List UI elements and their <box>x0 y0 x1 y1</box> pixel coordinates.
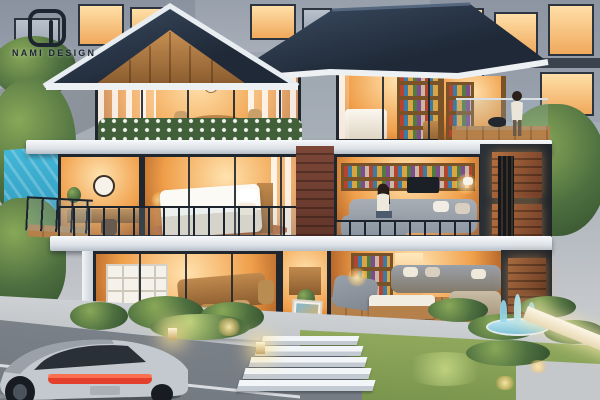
brand-logo: NAMI DESIGN <box>12 8 122 66</box>
floor2-balcony-slab <box>50 236 552 251</box>
sofa-pillow <box>471 269 486 279</box>
garden-step <box>249 357 368 367</box>
bollard-light <box>256 342 265 354</box>
sofa-pillow <box>403 267 418 277</box>
garden-step <box>242 368 371 379</box>
coffee-table <box>369 295 435 319</box>
sofa-pillow <box>433 201 449 212</box>
sofa-pillow <box>455 203 470 214</box>
wall-clock <box>93 175 115 197</box>
brand-name: NAMI DESIGN <box>12 48 122 58</box>
garden-step <box>255 346 364 356</box>
floor3-balcony-slab <box>26 140 552 154</box>
garden-step <box>236 380 375 391</box>
garden-light <box>528 360 548 373</box>
side-lamp-glow <box>347 267 367 287</box>
garden-step <box>261 336 360 345</box>
floor-lamp <box>463 177 473 185</box>
slatted-window <box>498 156 514 246</box>
sofa-pillow <box>425 267 440 277</box>
bedroom-balcony-railing <box>58 206 310 240</box>
architectural-rendering-canvas: NAMI DESIGN <box>0 0 600 400</box>
nami-monogram-icon <box>26 8 72 48</box>
tv-screen <box>407 177 439 193</box>
silver-sedan <box>0 330 194 400</box>
garden-bush <box>70 302 128 330</box>
garden-light <box>494 376 516 390</box>
fountain-jet <box>500 300 507 322</box>
fountain-jet <box>514 294 521 322</box>
garden-uplight <box>216 318 242 336</box>
